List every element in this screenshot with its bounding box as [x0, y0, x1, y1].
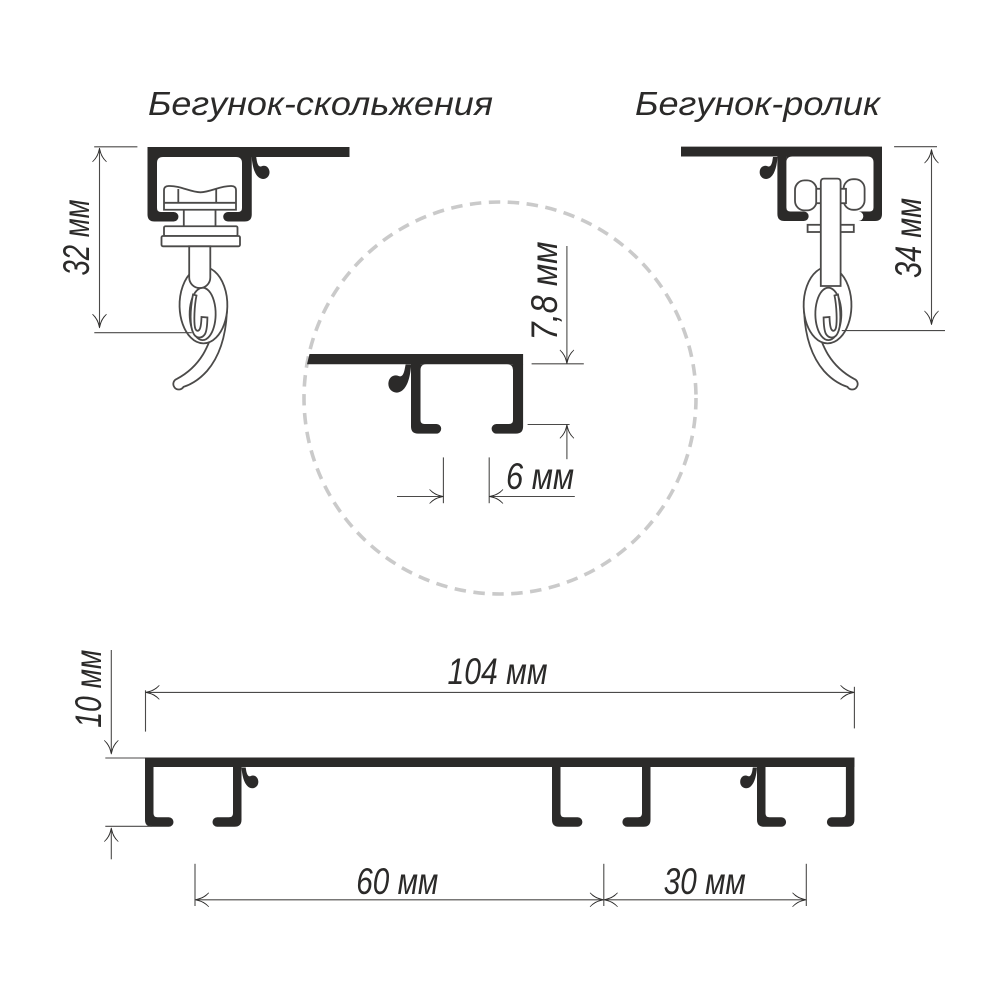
svg-text:Бегунок-скольжения: Бегунок-скольжения: [148, 85, 493, 122]
svg-text:32 мм: 32 мм: [56, 200, 97, 276]
svg-text:34 мм: 34 мм: [888, 198, 929, 278]
svg-text:30 мм: 30 мм: [664, 861, 746, 902]
svg-text:Бегунок-ролик: Бегунок-ролик: [635, 85, 882, 122]
svg-text:60 мм: 60 мм: [356, 861, 438, 902]
svg-text:7,8 мм: 7,8 мм: [524, 242, 565, 341]
svg-text:6 мм: 6 мм: [506, 456, 574, 497]
svg-text:10 мм: 10 мм: [68, 650, 109, 728]
svg-text:104 мм: 104 мм: [448, 651, 548, 692]
